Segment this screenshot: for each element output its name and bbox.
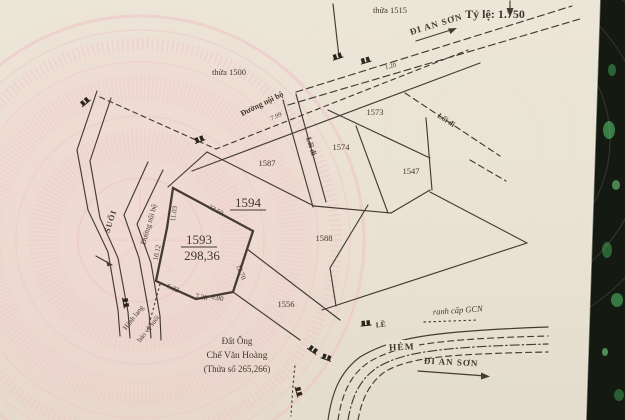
curb-label: LỀ [375,319,386,330]
parcel-label-1573: 1573 [367,107,384,117]
scale-label: Tỷ lệ: 1.750 [465,7,525,21]
owner-note-line2: Chế Văn Hoàng [206,350,267,361]
parcel-label-1547: 1547 [403,166,420,176]
parcel-label-1515: thửa 1515 [373,5,407,15]
parcel-label-1593: 1593 [186,232,212,247]
owner-note-line1: Đất Ông [222,336,253,346]
parcel-1593-area: 298,36 [184,248,220,263]
parcel-label-1587: 1587 [259,158,276,168]
owner-note-line3: (Thửa số 265,266) [204,364,271,374]
parcel-label-1574: 1574 [333,142,351,152]
parcel-label-1594: 1594 [235,195,262,210]
cadastral-map-svg: Tỷ lệ: 1.750 thửa 1515 thửa 1500 ĐI AN S… [0,0,625,420]
parcel-label-1500: thửa 1500 [212,67,246,77]
parcel-label-1588: 1588 [316,233,333,243]
parcel-label-1556: 1556 [278,299,295,309]
cadastral-map-photo: Tỷ lệ: 1.750 thửa 1515 thửa 1500 ĐI AN S… [0,0,625,420]
